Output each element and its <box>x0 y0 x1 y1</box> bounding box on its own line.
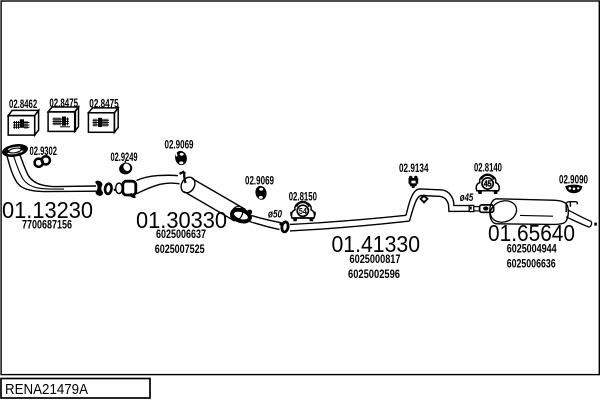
svg-text:02.8462: 02.8462 <box>9 99 37 111</box>
svg-text:02.8140: 02.8140 <box>474 163 502 175</box>
svg-text:02.9069: 02.9069 <box>245 176 274 188</box>
svg-text:6025006637: 6025006637 <box>156 229 206 241</box>
svg-text:6025006636: 6025006636 <box>507 258 556 270</box>
svg-text:6025002596: 6025002596 <box>348 269 400 281</box>
svg-text:ø45: ø45 <box>460 192 474 204</box>
svg-text:ø50: ø50 <box>268 209 283 221</box>
svg-text:6025007525: 6025007525 <box>155 244 205 256</box>
svg-text:RENA21479A: RENA21479A <box>5 381 88 398</box>
svg-text:02.9134: 02.9134 <box>399 163 429 175</box>
svg-text:45: 45 <box>484 179 492 189</box>
svg-text:02.8475: 02.8475 <box>49 98 78 110</box>
svg-text:01.65640: 01.65640 <box>488 220 575 246</box>
svg-text:7700687156: 7700687156 <box>22 219 72 231</box>
svg-text:54: 54 <box>299 206 307 216</box>
svg-text:6025000817: 6025000817 <box>350 254 401 266</box>
svg-text:02.9249: 02.9249 <box>111 152 138 164</box>
svg-text:6025004944: 6025004944 <box>507 243 557 255</box>
svg-text:02.8475: 02.8475 <box>89 99 119 111</box>
svg-text:02.9069: 02.9069 <box>165 140 194 152</box>
